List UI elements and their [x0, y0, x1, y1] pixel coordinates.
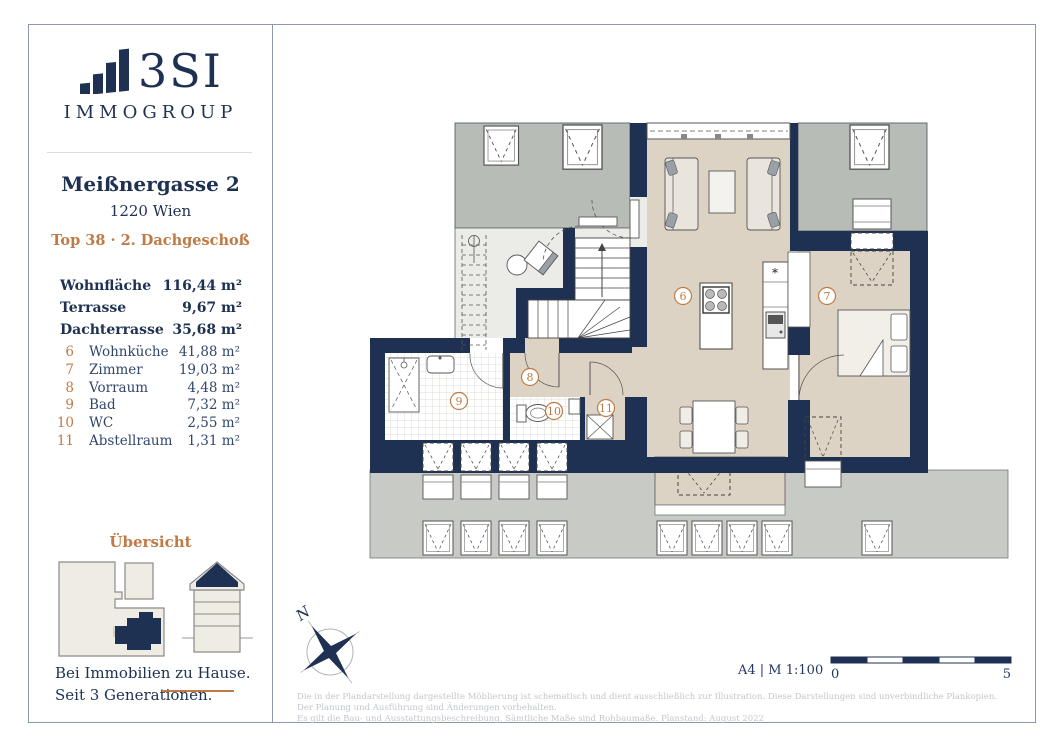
- bed: [838, 310, 910, 376]
- subbrand-text: IMMOGROUP: [28, 102, 273, 123]
- disclaimer-line1: Die in der Plandarstellung dargestellte …: [297, 692, 1013, 714]
- compass-rose: N: [288, 598, 372, 692]
- room-name: Zimmer: [89, 362, 179, 380]
- building-footprint-map: [55, 556, 167, 660]
- room-label-9: 9: [456, 395, 463, 408]
- room-name: Abstellraum: [89, 433, 187, 451]
- room-area: 2,55 m²: [187, 415, 240, 433]
- logo-divider: [47, 152, 252, 153]
- room-name: Wohnküche: [89, 344, 179, 362]
- summary-label: Dachterrasse: [60, 319, 164, 341]
- room-row: 6Wohnküche41,88 m²: [52, 344, 240, 362]
- room-name: WC: [89, 415, 187, 433]
- coffee-table: [709, 171, 735, 213]
- summary-row: Dachterrasse35,68 m²: [60, 319, 242, 341]
- room-area: 41,88 m²: [179, 344, 240, 362]
- floor-plan: *: [285, 105, 1045, 575]
- wc-sink: [569, 399, 580, 414]
- company-tagline: Bei Immobilien zu Hause. Seit 3 Generati…: [55, 662, 251, 706]
- sofa-left: [665, 158, 698, 230]
- room-area: 4,48 m²: [187, 380, 240, 398]
- tagline-line2: Seit 3 Generationen.: [55, 684, 251, 706]
- wardrobe-column: [788, 252, 810, 327]
- terrace-door: [851, 233, 893, 249]
- sofa-right: [747, 158, 780, 230]
- kitchen-marker: *: [772, 266, 778, 280]
- kitchen-tall-units: *: [763, 262, 788, 369]
- disclaimer: Die in der Plandarstellung dargestellte …: [297, 692, 1013, 725]
- summary-value: 9,67 m²: [182, 297, 242, 319]
- summary-row: Wohnfläche116,44 m²: [60, 275, 242, 297]
- room-list: 6Wohnküche41,88 m² 7Zimmer19,03 m² 8Vorr…: [52, 344, 240, 451]
- room-number: 9: [52, 397, 74, 415]
- room-number: 6: [52, 344, 74, 362]
- tagline-line1: Bei Immobilien zu Hause.: [55, 662, 251, 684]
- summary-row: Terrasse9,67 m²: [60, 297, 242, 319]
- company-logo: 3SI IMMOGROUP: [28, 46, 273, 123]
- kitchen-island: [700, 283, 732, 349]
- address-street: Meißnergasse 2: [28, 172, 273, 196]
- storage-box: [587, 415, 613, 439]
- building-elevation: [180, 554, 255, 666]
- room-number: 7: [52, 362, 74, 380]
- room-row: 7Zimmer19,03 m²: [52, 362, 240, 380]
- living-window-band: [647, 123, 790, 139]
- disclaimer-line2: Es gilt die Bau- und Ausstattungsbeschre…: [297, 714, 1013, 725]
- shower: [389, 358, 419, 412]
- sidebar: 3SI IMMOGROUP Meißnergasse 2 1220 Wien T…: [28, 24, 273, 722]
- room-number: 10: [52, 415, 74, 433]
- round-table: [507, 255, 527, 275]
- room-area: 7,32 m²: [187, 397, 240, 415]
- address-city: 1220 Wien: [28, 202, 273, 220]
- scale-end: 5: [1003, 667, 1011, 682]
- room-number: 11: [52, 433, 74, 451]
- room-area: 1,31 m²: [187, 433, 240, 451]
- scale-bar: 0 5: [830, 652, 1012, 682]
- room-number: 8: [52, 380, 74, 398]
- room-row: 9Bad7,32 m²: [52, 397, 240, 415]
- summary-label: Terrasse: [60, 297, 126, 319]
- brand-text: 3SI: [138, 48, 223, 94]
- room-name: Bad: [89, 397, 187, 415]
- room-row: 10WC2,55 m²: [52, 415, 240, 433]
- room-row: 8Vorraum4,48 m²: [52, 380, 240, 398]
- area-summary: Wohnfläche116,44 m² Terrasse9,67 m² Dach…: [60, 275, 242, 341]
- format-scale-text: A4 | M 1:100: [738, 663, 823, 678]
- room-area: 19,03 m²: [179, 362, 240, 380]
- room-name: Vorraum: [89, 380, 187, 398]
- room-row: 11Abstellraum1,31 m²: [52, 433, 240, 451]
- summary-value: 116,44 m²: [163, 275, 242, 297]
- scale-start: 0: [831, 667, 839, 682]
- toilet: [517, 405, 550, 423]
- overview-title: Übersicht: [28, 533, 273, 551]
- bar-chart-logo-icon: [78, 46, 132, 94]
- terrace-window: [853, 199, 891, 229]
- tagline-rule: [162, 690, 234, 692]
- terrace-top-left: [455, 123, 630, 228]
- room-label-7: 7: [824, 290, 831, 303]
- summary-label: Wohnfläche: [60, 275, 151, 297]
- room-label-11: 11: [599, 402, 613, 415]
- summary-value: 35,68 m²: [172, 319, 242, 341]
- north-label: N: [292, 602, 315, 625]
- room-label-6: 6: [680, 290, 687, 303]
- unit-title: Top 38 · 2. Dachgeschoß: [28, 232, 273, 249]
- room-label-10: 10: [547, 405, 561, 418]
- room-label-8: 8: [527, 371, 534, 384]
